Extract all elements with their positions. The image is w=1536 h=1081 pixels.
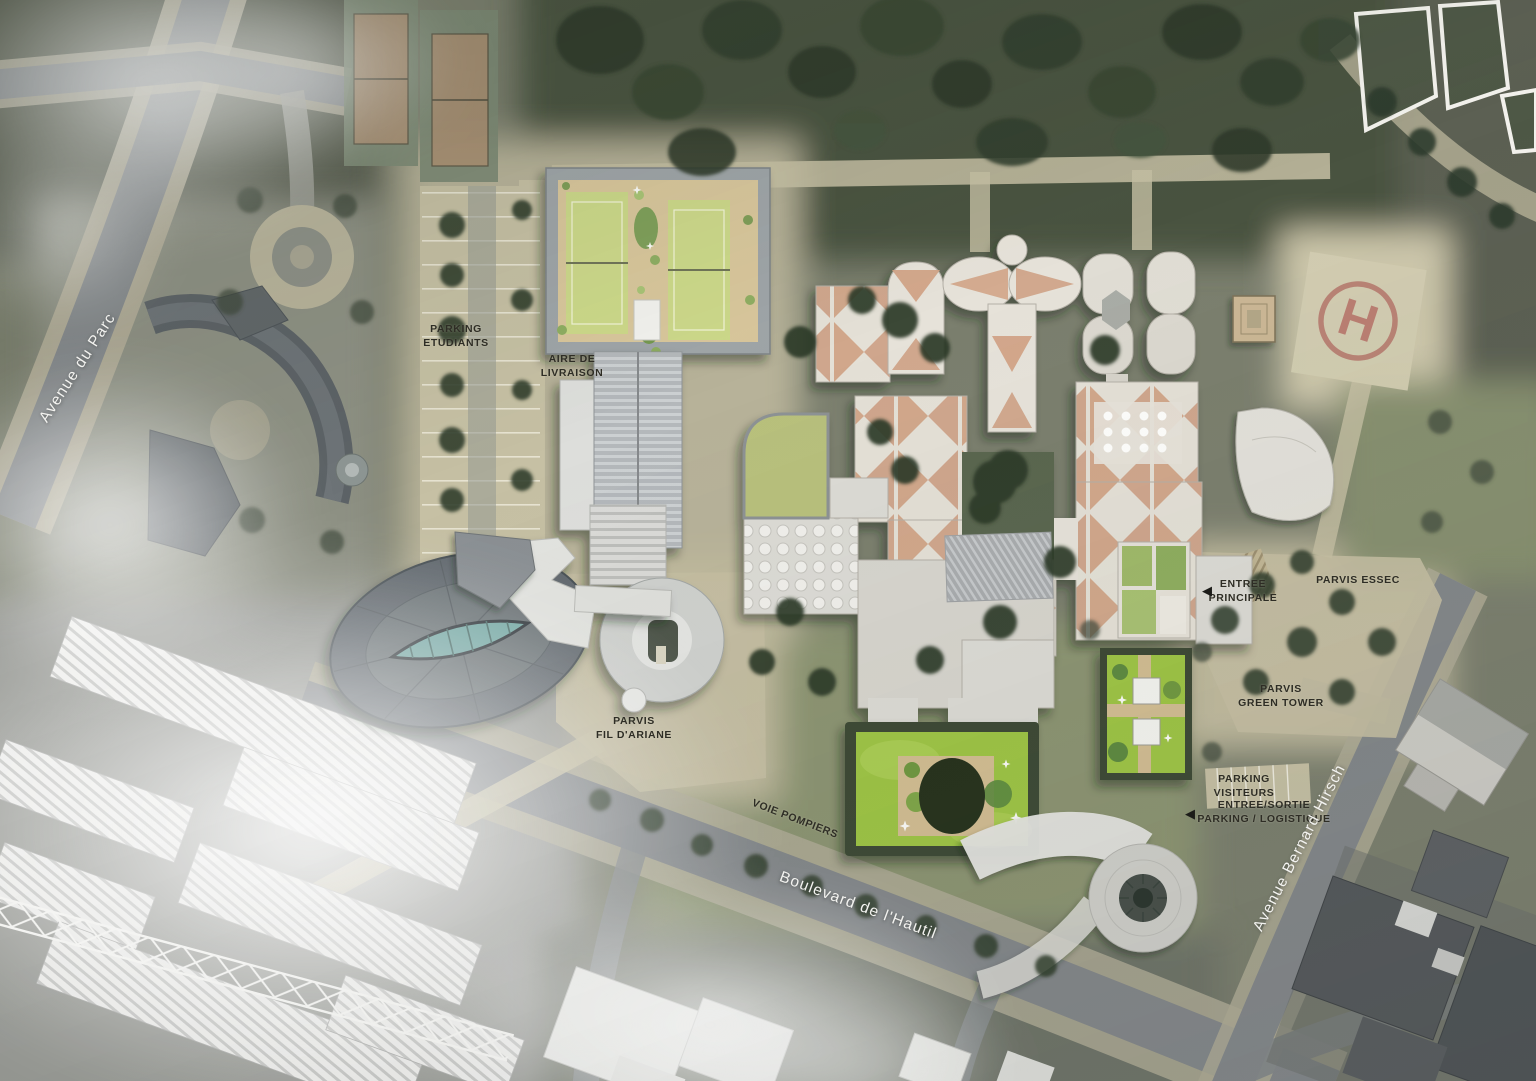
label-entree-principale: ENTREE PRINCIPALE (1209, 577, 1278, 605)
label-parvis-fil-ariane: PARVIS FIL D'ARIANE (596, 714, 672, 742)
label-parvis-essec: PARVIS ESSEC (1316, 573, 1400, 587)
label-parking-visiteurs: PARKING VISITEURS (1214, 772, 1275, 800)
parking-entrance-arrow-icon: ◀ (1185, 806, 1195, 822)
site-plan: PARKING ETUDIANTS AIRE DE LIVRAISON PARV… (0, 0, 1536, 1081)
site-plan-drawing (0, 0, 1536, 1081)
label-parvis-green-tower: PARVIS GREEN TOWER (1238, 682, 1324, 710)
green-tower (1100, 648, 1192, 780)
label-parking-etudiants: PARKING ETUDIANTS (423, 322, 488, 350)
existing-tennis-courts (344, 0, 498, 182)
parking-etudiants-area (420, 186, 542, 568)
gym-rooftop-tennis (546, 168, 770, 373)
entrance-arrow-icon: ◀ (1202, 583, 1212, 599)
label-aire-de-livraison: AIRE DE LIVRAISON (541, 352, 604, 380)
